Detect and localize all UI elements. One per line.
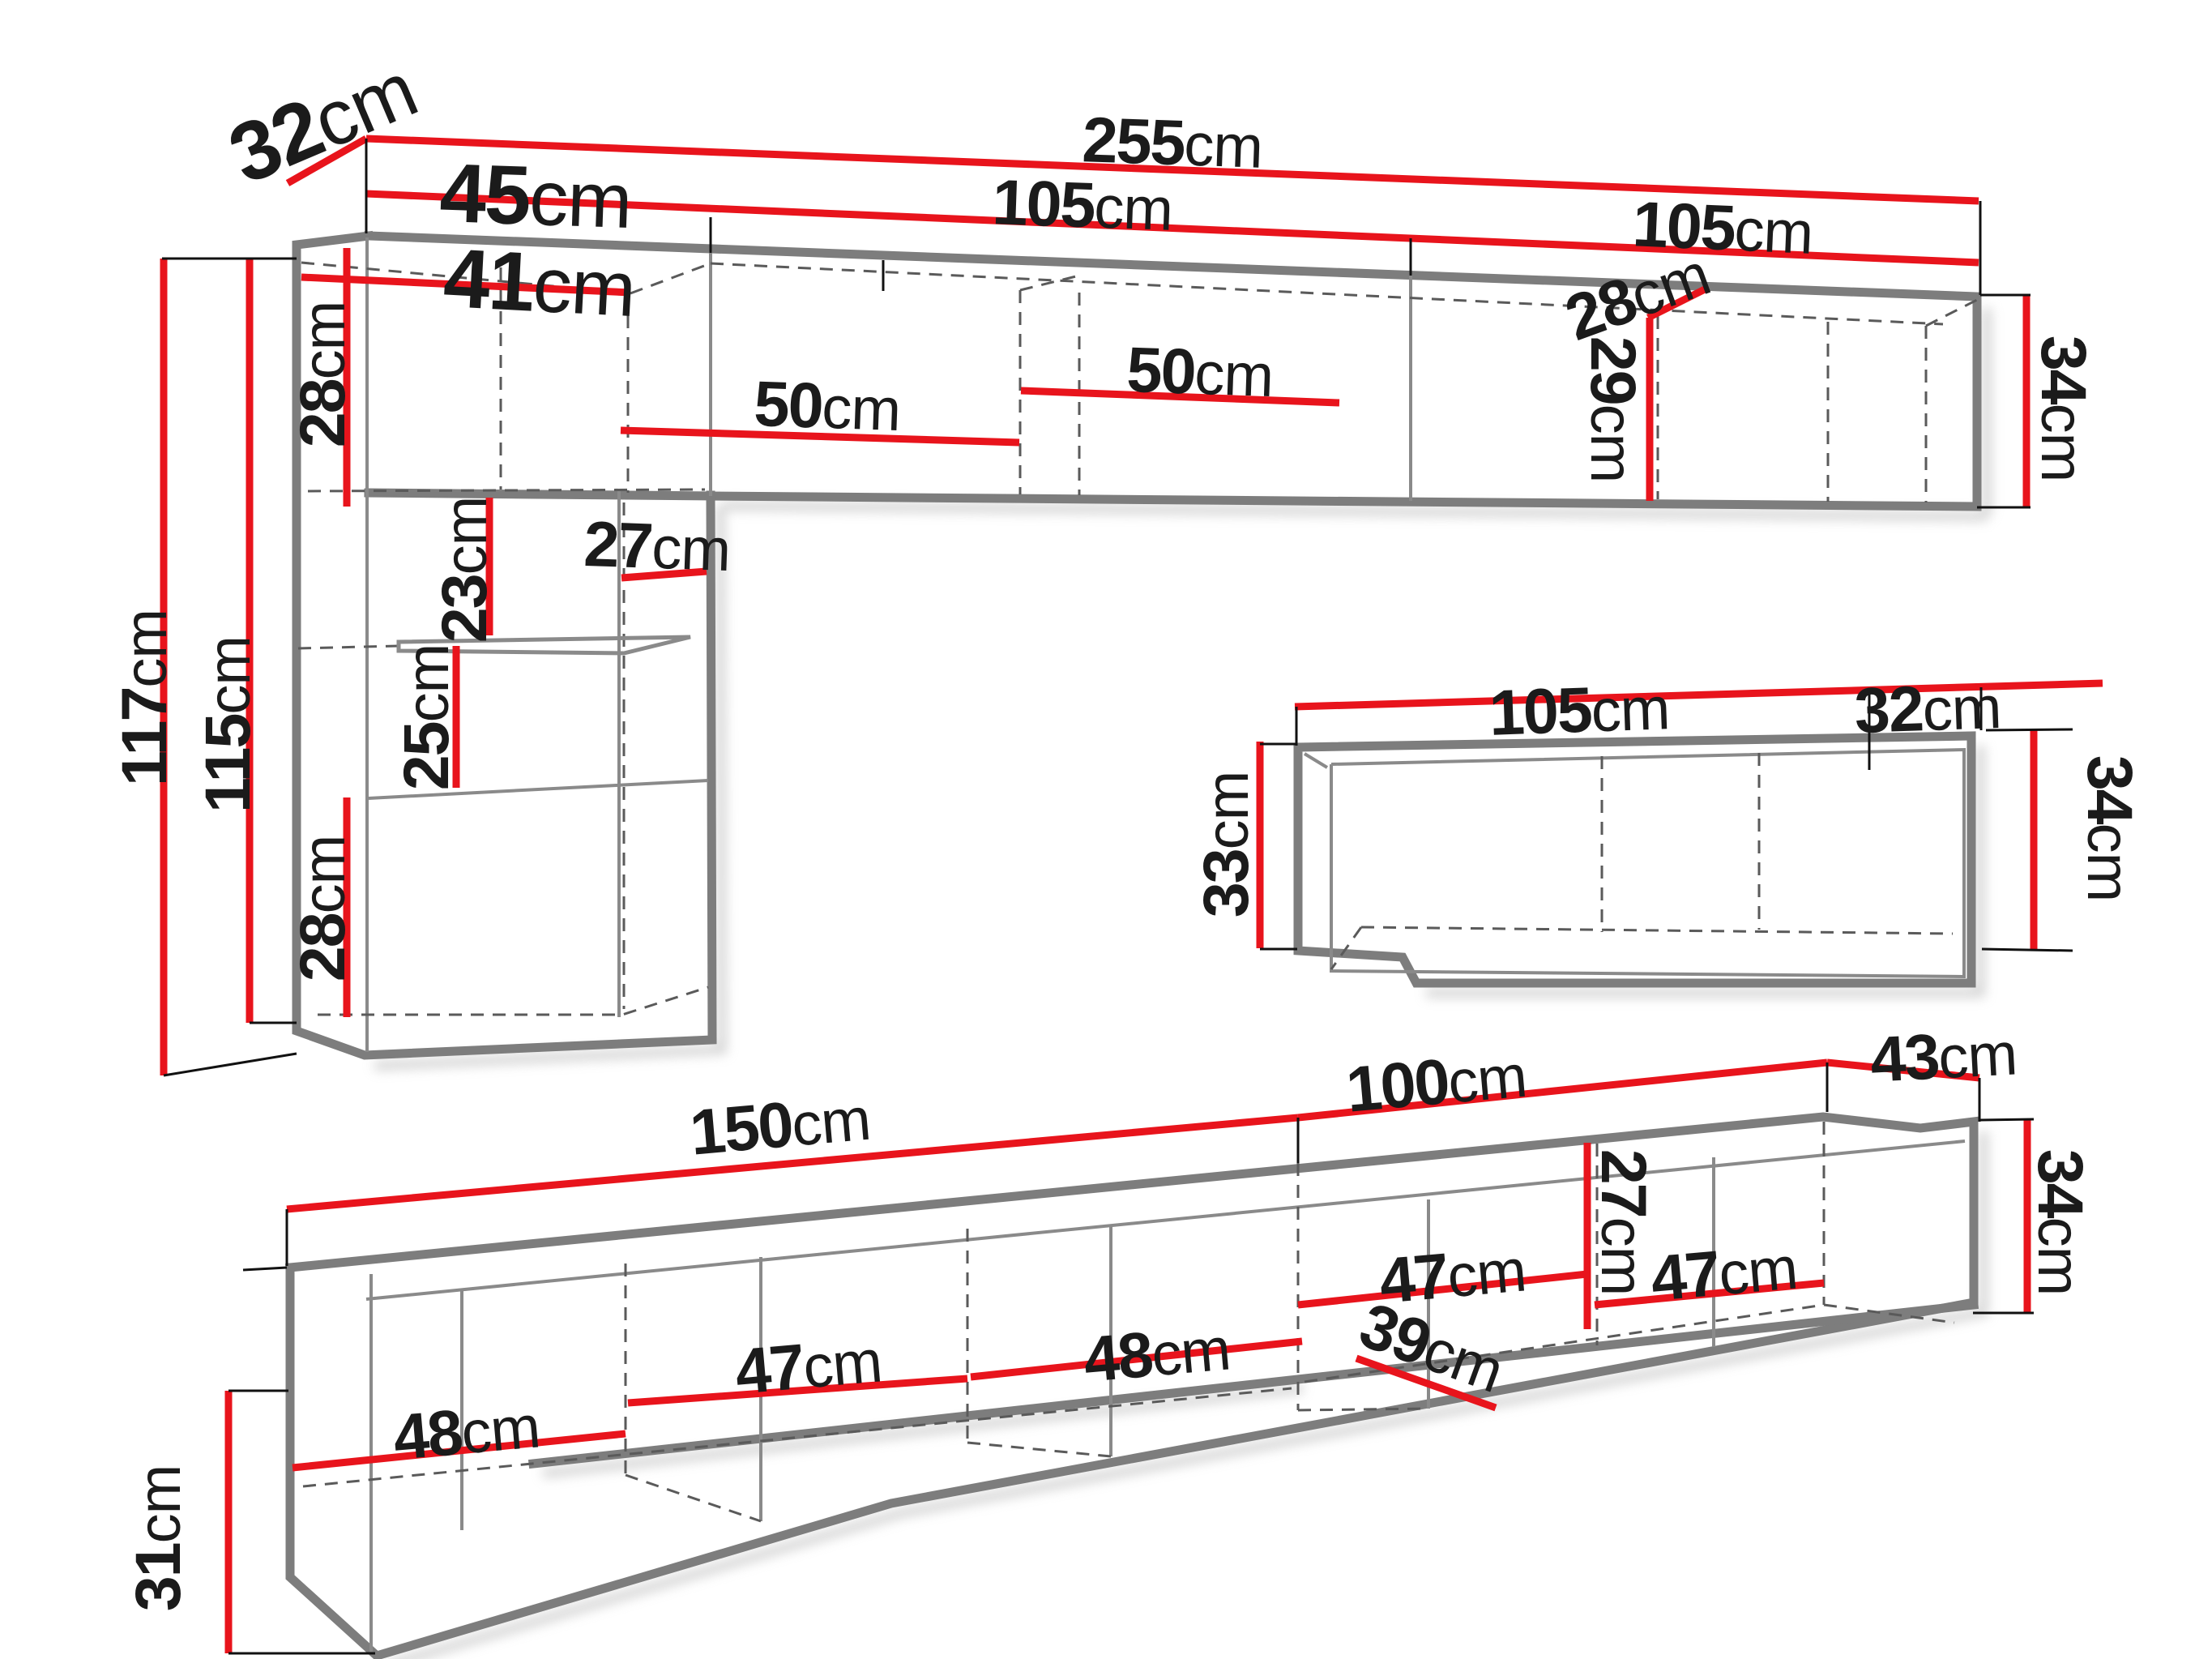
svg-text:33cm: 33cm [1189, 772, 1262, 918]
svg-text:27cm: 27cm [1588, 1149, 1660, 1296]
svg-text:23cm: 23cm [428, 497, 500, 644]
svg-text:117cm: 117cm [108, 609, 180, 786]
svg-text:28cm: 28cm [286, 836, 358, 982]
svg-text:31cm: 31cm [122, 1465, 194, 1612]
svg-text:27cm: 27cm [583, 507, 732, 584]
svg-text:48cm: 48cm [391, 1388, 543, 1473]
svg-text:29cm: 29cm [1578, 336, 1650, 483]
svg-text:105cm: 105cm [1488, 670, 1670, 749]
svg-text:34cm: 34cm [2025, 1149, 2097, 1296]
svg-text:255cm: 255cm [1081, 103, 1263, 182]
svg-text:47cm: 47cm [1648, 1229, 1800, 1314]
svg-text:115cm: 115cm [191, 636, 263, 813]
svg-text:105cm: 105cm [991, 165, 1173, 244]
svg-text:47cm: 47cm [732, 1323, 885, 1407]
svg-text:41cm: 41cm [442, 231, 638, 334]
svg-text:48cm: 48cm [1081, 1311, 1233, 1395]
svg-text:45cm: 45cm [438, 146, 633, 246]
svg-text:43cm: 43cm [1868, 1015, 2018, 1095]
svg-text:34cm: 34cm [2074, 755, 2146, 902]
svg-text:34cm: 34cm [2028, 336, 2100, 482]
svg-text:50cm: 50cm [1125, 333, 1275, 410]
svg-text:50cm: 50cm [753, 367, 902, 444]
svg-text:32cm: 32cm [1853, 669, 2002, 746]
svg-text:25cm: 25cm [390, 644, 462, 791]
svg-text:28cm: 28cm [286, 301, 358, 448]
